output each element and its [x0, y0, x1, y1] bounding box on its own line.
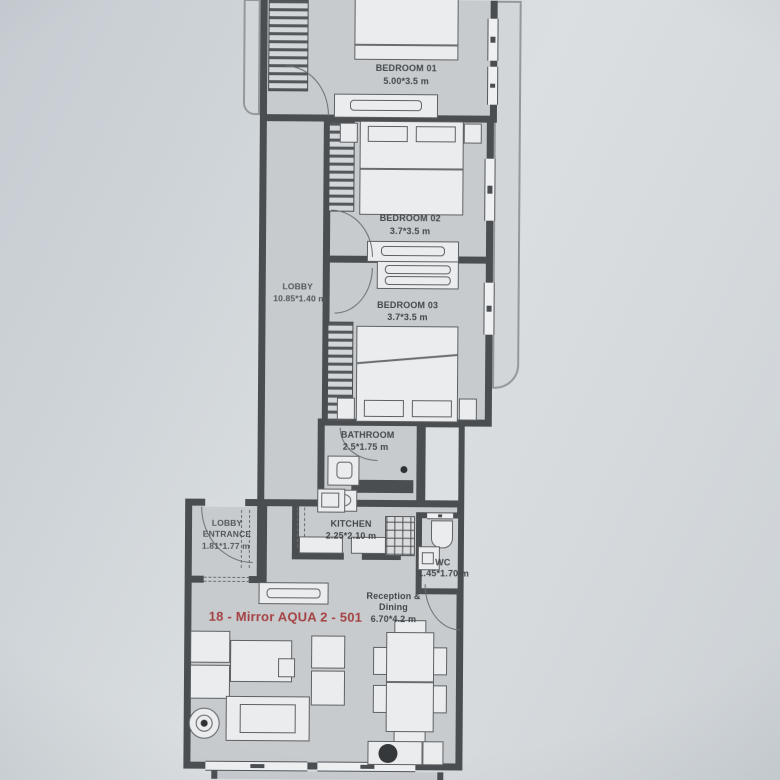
reception-dims: 6.70*4.2 m — [371, 615, 417, 625]
bedroom-02-label: BEDROOM 02 — [380, 214, 441, 224]
pillow — [368, 126, 408, 142]
drain-point — [400, 466, 407, 473]
bedroom-03-label: BEDROOM 03 — [377, 301, 438, 311]
lobby-entrance-dims: 1.81*1.77 m — [202, 542, 250, 552]
toilet-bowl — [336, 462, 352, 479]
toilet — [431, 520, 453, 548]
bathroom-label: BATHROOM — [341, 431, 395, 441]
bedroom-01-dims: 5.00*3.5 m — [383, 77, 429, 87]
armchair — [190, 665, 230, 699]
nightstand — [459, 398, 477, 420]
window — [484, 159, 495, 221]
wall-segment — [257, 499, 268, 582]
nightstand — [340, 123, 358, 143]
kitchen-sink-basin — [321, 493, 339, 508]
sofa-seat — [240, 704, 296, 733]
kitchen-label: KITCHEN — [330, 520, 371, 530]
window — [487, 19, 498, 61]
bedroom-01-bed — [354, 0, 458, 60]
bedroom-02-dims: 3.7*3.5 m — [390, 227, 430, 237]
pillow — [412, 400, 452, 417]
lower-terrace-sliver — [211, 771, 443, 780]
reception-label-1: Reception & — [366, 592, 420, 602]
window — [205, 761, 307, 772]
bedroom-03-dims: 3.7*3.5 m — [387, 313, 427, 323]
wc-dims: 1.45*1.70 m — [418, 569, 469, 579]
armchair — [190, 631, 230, 663]
dresser-handle — [350, 100, 422, 112]
window — [427, 512, 453, 519]
reception-label-2: Dining — [379, 603, 408, 613]
balcony-ledge-left — [243, 0, 261, 115]
kitchen-dims: 2.25*2.10 m — [326, 532, 377, 542]
lobby-entrance-label-2: ENTRANCE — [203, 530, 252, 540]
bedroom-01-label: BEDROOM 01 — [376, 64, 437, 74]
side-table — [278, 658, 295, 677]
dining-chair — [433, 685, 447, 713]
nightstand — [337, 398, 355, 420]
dresser-handle — [385, 276, 451, 285]
pillow — [416, 126, 456, 142]
pillow — [364, 400, 404, 417]
dining-chair — [373, 685, 387, 713]
stove — [385, 516, 415, 556]
lobby-entrance-label-1: LOBBY — [212, 519, 243, 529]
window — [483, 283, 494, 335]
lobby-dims: 10.85*1.40 m — [273, 294, 326, 304]
dashed-partition — [204, 577, 250, 582]
tv-unit — [378, 744, 397, 763]
nightstand — [464, 124, 482, 144]
floor-plan-photo: BEDROOM 01 5.00*3.5 m BEDROOM 02 3.7*3.5… — [0, 0, 780, 780]
floor-plan: BEDROOM 01 5.00*3.5 m BEDROOM 02 3.7*3.5… — [0, 0, 780, 780]
wc-label: WC — [435, 558, 450, 568]
dresser-handle — [385, 265, 451, 274]
bathroom-dims: 2.5*1.75 m — [343, 443, 389, 453]
unit-title: 18 - Mirror AQUA 2 - 501 — [209, 609, 362, 625]
armchair — [311, 635, 345, 668]
sideboard-handle — [267, 588, 321, 598]
bathroom-vanity-wall — [351, 480, 413, 493]
dining-chair — [373, 647, 387, 675]
wc-sink-basin — [422, 552, 434, 564]
tv-cabinet-divider — [421, 742, 423, 764]
dining-table-seam — [387, 681, 433, 683]
plant-center — [201, 720, 208, 727]
dresser-handle — [381, 246, 445, 256]
entrance-door-gap — [205, 499, 245, 507]
dining-chair — [433, 647, 447, 675]
lobby-label: LOBBY — [282, 282, 313, 292]
armchair — [311, 670, 345, 705]
wall-segment — [188, 576, 204, 583]
window — [487, 67, 498, 105]
